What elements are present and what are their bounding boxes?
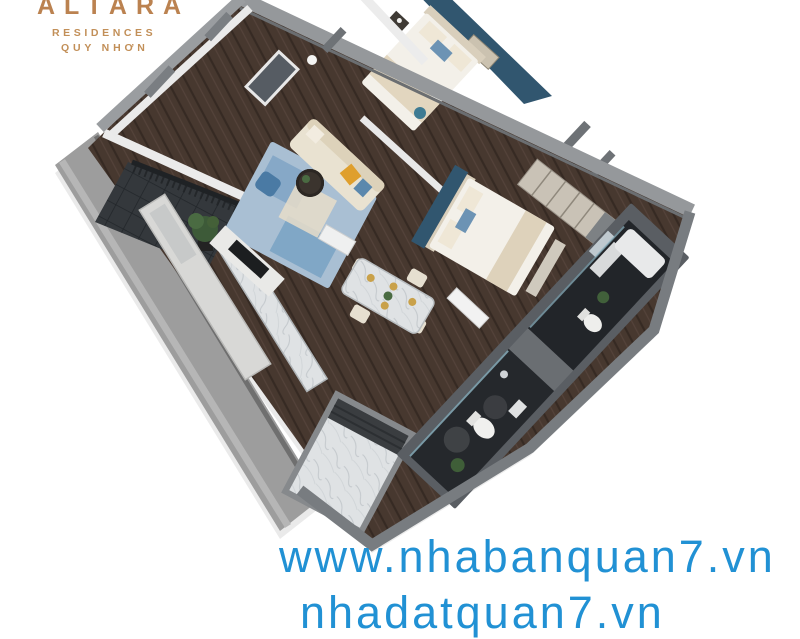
watermark-url-line2: nhadatquan7.vn <box>300 587 665 639</box>
brand-name: ALTARA <box>37 0 190 21</box>
brand-subtitle-residences: RESIDENCES <box>52 27 156 39</box>
coffee-table <box>296 169 324 197</box>
floorplan-render: ALTARA RESIDENCES QUY NHƠN www.nhabanqua… <box>0 0 800 600</box>
bedroom1-chair <box>414 107 426 119</box>
floorplan-svg <box>0 0 800 600</box>
brand-subtitle-city: QUY NHƠN <box>61 42 149 54</box>
floor-lamp <box>307 55 317 65</box>
watermark-url: www.nhabanquan7.vn <box>279 531 776 583</box>
